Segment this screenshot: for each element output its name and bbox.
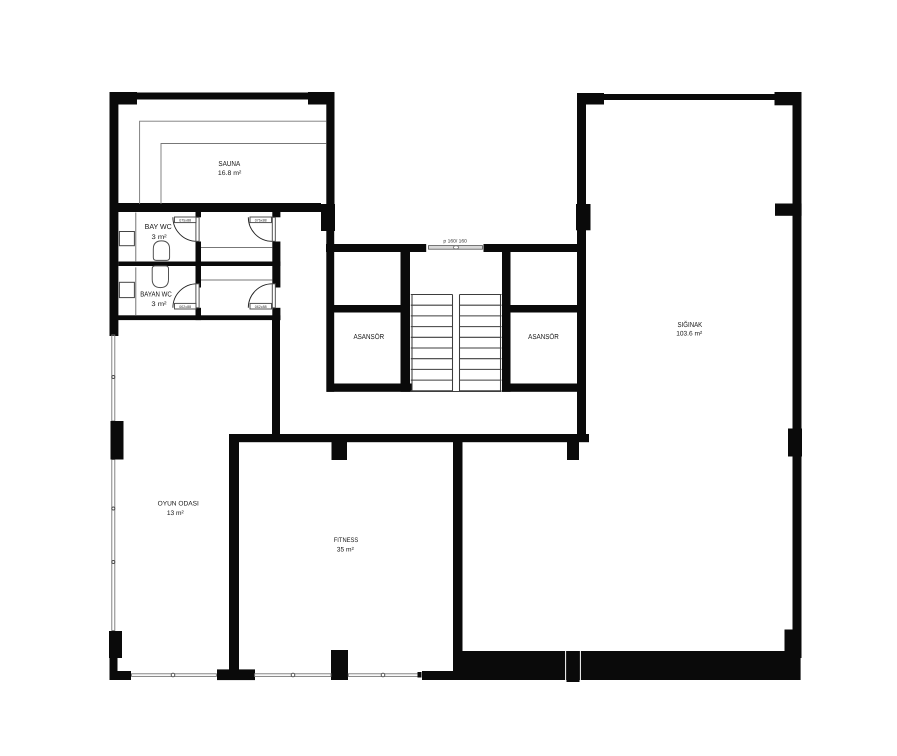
svg-text:BAYAN WC: BAYAN WC xyxy=(140,289,172,298)
svg-text:FITNESS: FITNESS xyxy=(334,537,359,544)
svg-text:SAUNA: SAUNA xyxy=(218,159,240,168)
svg-text:062x88: 062x88 xyxy=(255,305,267,309)
svg-text:16.8 m²: 16.8 m² xyxy=(218,170,242,177)
svg-text:075x88: 075x88 xyxy=(255,218,267,222)
svg-text:13 m²: 13 m² xyxy=(167,510,185,517)
svg-text:3 m²: 3 m² xyxy=(151,301,167,308)
svg-text:062x88: 062x88 xyxy=(179,305,191,309)
svg-text:35 m²: 35 m² xyxy=(337,547,355,554)
svg-text:ASANSÖR: ASANSÖR xyxy=(528,332,559,341)
svg-text:OYUN ODASI: OYUN ODASI xyxy=(158,501,199,508)
svg-text:p 160/ 160: p 160/ 160 xyxy=(443,238,467,244)
svg-text:103.6 m²: 103.6 m² xyxy=(676,331,703,338)
svg-text:BAY WC: BAY WC xyxy=(145,222,172,231)
svg-text:SIĞINAK: SIĞINAK xyxy=(678,320,703,329)
svg-text:3 m²: 3 m² xyxy=(152,234,168,241)
svg-text:ASANSÖR: ASANSÖR xyxy=(353,332,384,341)
svg-text:075x88: 075x88 xyxy=(179,218,191,222)
